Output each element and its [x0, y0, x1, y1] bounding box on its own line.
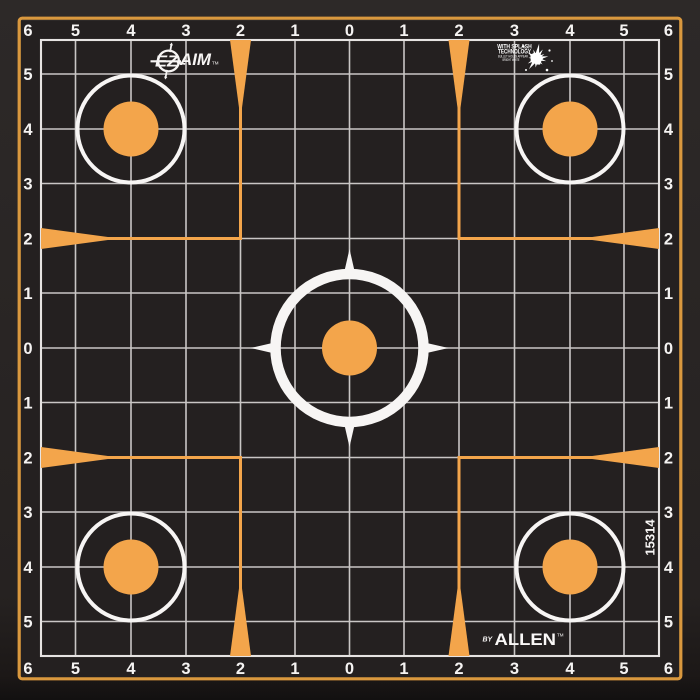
svg-text:6: 6	[664, 660, 673, 678]
svg-text:ALLEN: ALLEN	[495, 630, 557, 649]
svg-text:4: 4	[126, 660, 136, 678]
svg-text:TM: TM	[557, 633, 564, 638]
svg-text:15314: 15314	[642, 519, 657, 556]
svg-text:5: 5	[71, 660, 80, 678]
svg-text:BRIGHT WHITE: BRIGHT WHITE	[503, 58, 521, 62]
svg-text:4: 4	[23, 559, 33, 577]
svg-text:2: 2	[236, 660, 245, 678]
svg-text:1: 1	[664, 394, 673, 412]
svg-text:1: 1	[399, 22, 408, 40]
svg-text:1: 1	[23, 394, 32, 412]
svg-text:0: 0	[345, 660, 354, 678]
svg-text:3: 3	[664, 175, 673, 193]
svg-text:2: 2	[454, 22, 463, 40]
svg-text:4: 4	[565, 660, 575, 678]
svg-text:3: 3	[664, 504, 673, 522]
svg-text:5: 5	[619, 22, 628, 40]
svg-text:0: 0	[345, 22, 354, 40]
svg-text:2: 2	[23, 230, 32, 248]
svg-text:2: 2	[664, 449, 673, 467]
svg-text:6: 6	[664, 22, 673, 40]
svg-text:0: 0	[664, 340, 673, 358]
svg-text:TM: TM	[212, 61, 219, 66]
svg-text:4: 4	[126, 22, 136, 40]
svg-text:1: 1	[290, 22, 299, 40]
svg-text:5: 5	[664, 66, 673, 84]
svg-text:AIM: AIM	[179, 50, 212, 69]
svg-text:5: 5	[619, 660, 628, 678]
svg-text:BY: BY	[483, 637, 494, 644]
svg-text:4: 4	[664, 121, 674, 139]
svg-text:2: 2	[664, 230, 673, 248]
svg-text:0: 0	[23, 340, 32, 358]
svg-text:1: 1	[399, 660, 408, 678]
svg-text:1: 1	[664, 285, 673, 303]
svg-text:3: 3	[23, 504, 32, 522]
svg-text:3: 3	[510, 22, 519, 40]
svg-text:4: 4	[565, 22, 575, 40]
svg-text:1: 1	[290, 660, 299, 678]
svg-text:5: 5	[71, 22, 80, 40]
svg-text:5: 5	[23, 66, 32, 84]
svg-text:4: 4	[664, 559, 674, 577]
svg-text:6: 6	[23, 660, 32, 678]
svg-text:5: 5	[664, 613, 673, 631]
svg-text:2: 2	[23, 449, 32, 467]
svg-text:3: 3	[181, 22, 190, 40]
svg-text:3: 3	[181, 660, 190, 678]
svg-text:4: 4	[23, 121, 33, 139]
svg-text:1: 1	[23, 285, 32, 303]
svg-text:3: 3	[23, 175, 32, 193]
svg-text:5: 5	[23, 613, 32, 631]
svg-text:EZ: EZ	[155, 54, 179, 71]
svg-text:3: 3	[510, 660, 519, 678]
svg-text:2: 2	[454, 660, 463, 678]
svg-text:6: 6	[23, 22, 32, 40]
svg-text:2: 2	[236, 22, 245, 40]
